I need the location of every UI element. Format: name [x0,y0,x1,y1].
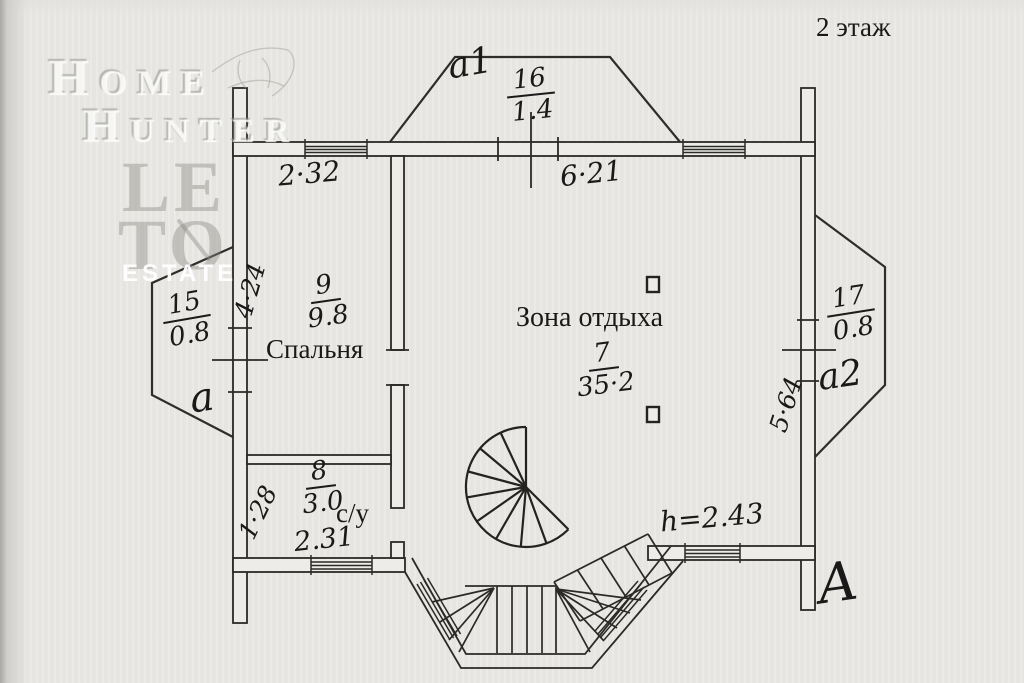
room8-number: 8 [302,456,336,489]
floor-title: 2 этаж [816,14,891,41]
floor-plan-page: Home Hunter LE TO ESTATE 2 этаж Спальня … [0,0,1024,683]
columns [647,277,659,422]
room9-number: 9 [307,270,341,304]
section-letter-a: A [814,554,860,613]
bay-letter-a1: a1 [445,42,495,85]
right-wall [801,88,815,610]
interior-wall-upper [391,156,404,350]
interior-wall-lower [391,542,404,558]
room7-number-area: 7 35·2 [567,336,642,402]
dim-top-left: 2·32 [277,157,342,190]
room7-area: 35·2 [571,368,642,402]
interior-wall-mid [391,385,404,508]
room16-number-area: 16 1.4 [493,63,569,128]
spiral-staircase [466,427,568,547]
dim-bath-width: 2.31 [293,523,356,556]
left-wall [233,88,247,623]
room9-number-area: 9 9.8 [292,268,359,334]
column-marker [647,277,659,292]
lounge-name-label: Зона отдыха [516,304,663,332]
bay-letter-a2: a2 [816,355,865,397]
dim-top-right: 6·21 [559,157,624,191]
spiral-arc [466,427,568,547]
bottom-bay-walls [405,546,683,668]
eagle-watermark-icon [212,48,294,96]
room7-number: 7 [585,338,619,371]
column-marker [647,407,659,422]
bedroom-name-label: Спальня [266,336,363,363]
room17-number-area: 17 0.8 [816,280,886,347]
room8-number-area: 8 3.0 [289,455,354,520]
room9-area: 9.8 [297,300,360,334]
bottom-bay-outer [405,561,683,668]
room15-number-area: 15 0.8 [153,285,220,352]
room8-area: 3.0 [293,486,354,519]
